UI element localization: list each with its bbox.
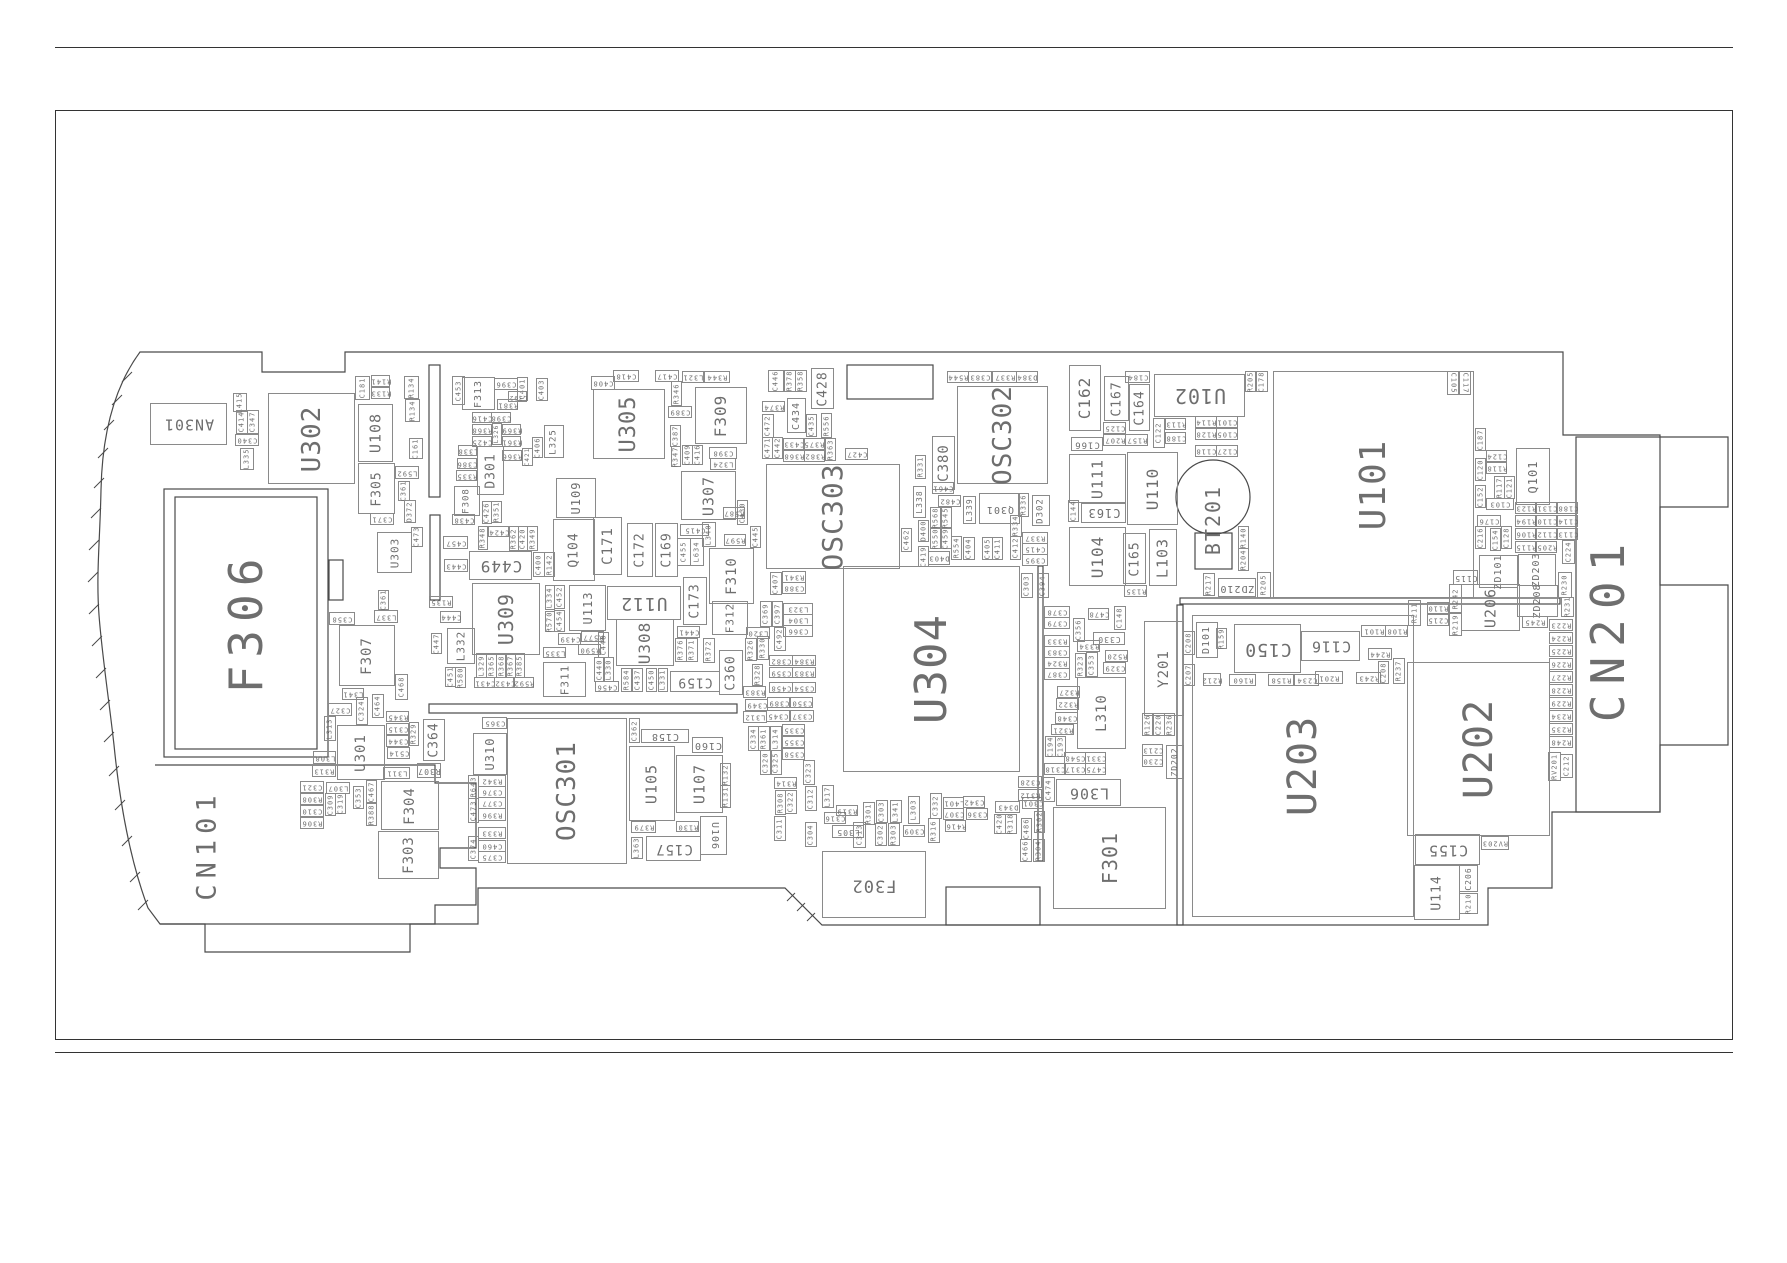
component-d372: D372 (404, 500, 416, 523)
component-designator: C313 (856, 825, 863, 846)
component-designator: F309 (713, 394, 729, 437)
component-designator: R375 (804, 441, 825, 448)
component-designator: R378 (787, 371, 794, 392)
component-designator: R323 (1077, 655, 1084, 676)
component-designator: C163 (1087, 507, 1120, 519)
component-designator: C371 (372, 516, 393, 523)
component-designator: U101 (1356, 439, 1392, 530)
component-r592: R592 (513, 677, 534, 688)
component-designator: R133 (370, 390, 391, 397)
component-c389: C389 (668, 406, 692, 418)
component-designator: C447 (433, 633, 440, 654)
component-designator: C154 (1492, 529, 1499, 550)
component-c122: C122 (1153, 418, 1165, 448)
component-designator: C172 (634, 532, 647, 567)
component-rv203: RV203 (1481, 836, 1509, 850)
component-designator: R318 (1008, 814, 1015, 835)
component-designator: C353 (1089, 654, 1096, 675)
component-designator: C336 (967, 811, 988, 818)
component-designator: C321 (302, 784, 323, 791)
component-designator: R363 (827, 439, 834, 460)
component-designator: L335 (544, 649, 565, 656)
component-c325: C325 (770, 750, 782, 775)
component-designator: C389 (670, 409, 691, 416)
component-r327: R327 (1057, 686, 1080, 698)
component-designator: U310 (484, 738, 496, 771)
component-c482: C482 (938, 495, 961, 507)
component-designator: L325 (550, 429, 559, 455)
component-c303: C303 (1021, 573, 1033, 598)
component-designator: R345 (387, 713, 408, 720)
component-c514: C514 (387, 747, 410, 759)
component-u104: U104 (1069, 527, 1126, 586)
component-designator: C340 (237, 437, 258, 444)
component-designator: C452 (556, 587, 563, 608)
component-designator: C444 (440, 614, 461, 621)
component-designator: R313 (314, 768, 335, 775)
component-r227: R227 (1549, 671, 1573, 683)
component-designator: BT201 (1203, 485, 1223, 555)
component-r316: R316 (928, 818, 940, 843)
component-designator: Q301 (985, 504, 1013, 514)
component-c309: C309 (903, 825, 925, 837)
component-designator: L324 (713, 461, 734, 468)
component-designator: R128 (1196, 431, 1217, 438)
component-osc302: OSC302 (957, 386, 1048, 484)
component-designator: C304 (808, 824, 815, 845)
component-designator: R361 (761, 728, 768, 749)
component-designator: R328 (754, 665, 761, 686)
component-designator: C364 (428, 722, 441, 757)
component-c178: C178 (1256, 371, 1268, 392)
component-designator: R416 (945, 823, 966, 830)
component-c428: C428 (811, 368, 834, 409)
component-c418: C418 (613, 370, 639, 382)
component-designator: L306 (1068, 785, 1108, 800)
component-designator: D400 (920, 521, 927, 542)
component-layer: AN301L415C414C347C340L335U302C181R141R13… (0, 0, 1787, 1263)
component-l338: L338 (458, 445, 477, 456)
component-c212: C212 (1560, 754, 1573, 778)
component-designator: R327 (1058, 689, 1079, 696)
component-designator: C354 (794, 684, 815, 691)
component-designator: F302 (852, 876, 897, 893)
component-designator: R383 (744, 689, 765, 696)
component-c387: C387 (670, 425, 681, 447)
component-l308: L308 (313, 751, 336, 764)
component-d403: D403 (928, 551, 950, 565)
component-designator: ZD210 (1219, 583, 1254, 593)
component-c382: C382 (769, 655, 793, 666)
component-designator: L340 (706, 524, 713, 545)
component-r307: R307 (417, 763, 441, 778)
component-designator: R643 (470, 777, 477, 798)
component-r210: R210 (1459, 893, 1478, 914)
component-designator: C160 (693, 740, 721, 750)
component-designator: R118 (1486, 465, 1507, 472)
component-designator: R194 (1515, 518, 1536, 525)
component-designator: R351 (493, 502, 500, 523)
component-designator: R369 (501, 426, 522, 433)
component-c315: C315 (386, 723, 409, 735)
component-r368: R368 (472, 424, 492, 435)
component-r349: R349 (527, 526, 538, 551)
component-designator: R379 (633, 824, 654, 831)
component-r336: R336 (1018, 493, 1029, 517)
component-designator: C383 (970, 374, 991, 381)
component-c336: C336 (966, 808, 988, 820)
component-d302: D302 (1032, 495, 1050, 526)
component-designator: ZD208 (1533, 583, 1543, 618)
component-designator: R142 (546, 554, 553, 575)
component-c442: C442 (772, 437, 783, 459)
component-designator: R242 (1452, 588, 1459, 609)
component-u302: U302 (268, 393, 355, 484)
component-designator: C101 (1217, 419, 1238, 426)
component-r383: R383 (792, 667, 816, 678)
component-r375: R375 (803, 438, 825, 450)
component-designator: R368 (784, 453, 805, 460)
component-f303: F303 (378, 831, 439, 879)
component-r371: R371 (686, 638, 698, 662)
component-designator: L338 (457, 447, 478, 454)
component-designator: U202 (1459, 699, 1499, 799)
component-designator: C121 (1506, 477, 1513, 498)
component-designator: C215 (1428, 617, 1449, 624)
component-designator: C327 (330, 706, 351, 713)
component-r130: R130 (676, 821, 699, 832)
component-r545: R545 (940, 507, 952, 528)
component-c360: C360 (719, 650, 743, 695)
component-r113: R113 (1165, 418, 1186, 430)
component-c193: C193 (1055, 736, 1066, 757)
component-r226: R226 (1549, 658, 1573, 670)
component-u113: U113 (569, 585, 606, 631)
component-c165: C165 (1123, 533, 1146, 584)
component-r366: R366 (502, 450, 522, 461)
component-designator: R225 (1551, 648, 1572, 655)
component-l337: L337 (374, 610, 398, 623)
component-c173: C173 (683, 577, 707, 625)
component-designator: C453 (455, 380, 462, 401)
component-designator: C426 (484, 502, 491, 523)
component-u202: U202 (1407, 662, 1550, 836)
component-r223: R223 (1549, 619, 1573, 631)
component-designator: R135 (431, 599, 452, 606)
component-u107: U107 (676, 755, 723, 813)
component-designator: R110 (1428, 605, 1449, 612)
component-designator: C424 (488, 528, 509, 535)
component-designator: C428 (816, 371, 829, 406)
component-designator: C165 (1128, 541, 1141, 576)
component-c329: C329 (1103, 662, 1126, 674)
component-designator: C455 (681, 542, 688, 563)
component-designator: C435 (808, 415, 815, 436)
component-r231: R231 (1561, 597, 1574, 617)
component-r416: R416 (945, 820, 966, 832)
component-designator: R223 (1551, 622, 1572, 629)
component-d301: D301 (477, 446, 504, 495)
component-r229: R229 (1549, 697, 1573, 709)
component-c435: C435 (806, 414, 817, 437)
component-l313: L313 (324, 716, 336, 741)
component-designator: R123 (1515, 505, 1536, 512)
component-designator: C188 (1557, 505, 1578, 512)
component-designator: C158 (651, 731, 679, 741)
component-designator: C348 (1056, 715, 1077, 722)
component-r204: R204 (1238, 548, 1249, 571)
component-designator: C406 (534, 437, 541, 458)
component-c468: C468 (395, 674, 408, 700)
component-c407: C407 (770, 572, 782, 595)
component-designator: RV201 (1551, 753, 1558, 779)
component-designator: C379 (1047, 620, 1068, 627)
component-designator: C433 (784, 441, 805, 448)
component-c394: C394 (1037, 573, 1049, 598)
component-r302: R302 (1034, 811, 1045, 833)
component-l306: L306 (1056, 779, 1121, 806)
component-c163: C163 (1081, 503, 1126, 523)
component-designator: R314 (775, 780, 796, 787)
component-designator: ZD203 (1532, 552, 1542, 587)
component-f308: F308 (454, 486, 480, 516)
component-u101: U101 (1273, 371, 1474, 598)
component-c335: C335 (782, 724, 805, 736)
component-r236: R236 (1164, 713, 1175, 736)
component-designator: R231 (1564, 597, 1571, 618)
component-designator: R331 (917, 457, 924, 478)
component-designator: R329 (411, 724, 418, 745)
component-r141: R141 (371, 375, 390, 387)
component-designator: F305 (370, 471, 383, 506)
component-designator: C162 (1077, 377, 1093, 420)
component-designator: C376 (482, 789, 503, 796)
component-f313: F313 (462, 377, 495, 410)
component-designator: C358 (332, 615, 353, 622)
component-designator: C325 (773, 752, 780, 773)
component-c447: C447 (431, 633, 442, 654)
component-designator: C345 (768, 713, 789, 720)
component-designator: C459 (943, 528, 950, 549)
component-c396: C396 (494, 378, 518, 390)
component-an301: AN301 (150, 403, 227, 445)
component-designator: U304 (910, 614, 954, 724)
component-c452: C452 (554, 585, 565, 609)
component-designator: C353 (355, 787, 362, 808)
component-c172: C172 (627, 523, 653, 577)
component-designator: C369 (763, 604, 770, 625)
component-c369: C369 (760, 601, 772, 627)
component-designator: F313 (474, 379, 484, 407)
component-designator: R228 (1551, 687, 1572, 694)
component-designator: C425 (472, 438, 493, 445)
component-designator: C359 (771, 669, 792, 676)
component-designator: C439 (559, 636, 580, 643)
component-c105: C105 (1216, 428, 1238, 440)
component-c188: C188 (1165, 432, 1186, 444)
component-designator: C128 (1503, 527, 1510, 548)
component-c224: C224 (1562, 540, 1575, 564)
component-c303: C303 (876, 800, 888, 823)
component-designator: L304 (788, 617, 809, 624)
component-f304: F304 (381, 781, 439, 830)
component-designator: R347 (673, 446, 680, 467)
component-c359: C359 (769, 667, 793, 678)
component-designator: C377 (482, 800, 503, 807)
component-designator: R307 (417, 767, 440, 775)
component-r396: R396 (478, 808, 506, 821)
component-c125: C125 (1103, 422, 1126, 434)
component-r330: R330 (757, 636, 769, 660)
component-c450: C450 (646, 668, 657, 692)
component-r230: R230 (1558, 572, 1572, 598)
component-c101: C101 (1216, 416, 1238, 428)
component-designator: C347 (250, 412, 257, 433)
component-designator: F301 (1100, 832, 1120, 884)
component-designator: U305 (618, 396, 640, 453)
component-c318: C318 (1044, 763, 1066, 775)
component-designator: C442 (774, 438, 781, 459)
component-designator: C302 (878, 824, 885, 845)
component-designator: C478 (1088, 611, 1109, 618)
component-designator: C405 (984, 538, 991, 559)
component-osc303: OSC303 (766, 464, 900, 569)
component-designator: C166 (1074, 440, 1100, 449)
component-c455: C455 (677, 538, 691, 566)
component-designator: R368 (498, 655, 505, 676)
component-c230: C230 (1142, 755, 1163, 767)
component-c342: C342 (963, 796, 985, 808)
component-designator: C438 (453, 516, 474, 523)
component-designator: C474 (1046, 779, 1053, 800)
component-designator: L103 (1156, 537, 1171, 577)
component-u309: U309 (472, 583, 540, 655)
component-r379: R379 (631, 821, 656, 833)
component-c160: C160 (692, 737, 723, 753)
component-r228: R228 (1549, 684, 1573, 696)
component-designator: U109 (570, 482, 582, 515)
component-c416: C416 (472, 412, 492, 423)
component-designator: R388 (368, 804, 375, 825)
component-designator: R362 (511, 528, 518, 549)
component-c404: C404 (963, 537, 975, 560)
component-designator: C451 (447, 667, 454, 688)
component-designator: C118 (1196, 448, 1217, 455)
component-designator: C358 (783, 751, 804, 758)
component-designator: C181 (359, 378, 366, 399)
component-u109: U109 (556, 478, 596, 518)
component-c188: C188 (1557, 502, 1578, 514)
component-designator: C230 (1142, 758, 1163, 765)
component-designator: C375 (482, 854, 503, 861)
component-c215: C215 (1427, 614, 1449, 626)
component-c361: C361 (378, 590, 389, 610)
component-designator: C105 (1217, 431, 1238, 438)
component-r554: R554 (951, 536, 962, 560)
component-c397: C397 (772, 601, 783, 627)
component-r556: R556 (821, 413, 832, 438)
component-designator: R383 (794, 669, 815, 676)
component-c445: C445 (750, 526, 761, 548)
component-designator: F303 (402, 836, 416, 874)
component-designator: R368 (472, 426, 493, 433)
component-c462: C462 (901, 528, 912, 552)
component-designator: C178 (1259, 371, 1266, 392)
component-f312: F312 (712, 601, 748, 635)
component-r106: R106 (1515, 528, 1536, 540)
component-designator: R224 (1551, 635, 1572, 642)
component-f311: F311 (543, 662, 586, 697)
component-designator: C440 (596, 659, 603, 680)
component-c311: C311 (774, 816, 786, 841)
component-c155: C155 (1415, 834, 1480, 865)
component-c472: C472 (762, 414, 774, 438)
component-designator: C112 (1536, 531, 1557, 538)
component-designator: C382 (771, 657, 792, 664)
component-designator: C397 (774, 604, 781, 625)
component-r346: R346 (671, 381, 682, 406)
component-q101: Q101 (1516, 448, 1550, 505)
component-designator: C320 (763, 752, 770, 773)
component-c118: C118 (1195, 445, 1217, 457)
component-r388: R388 (366, 803, 377, 826)
component-designator: R106 (1515, 531, 1536, 538)
component-r381: R381 (497, 399, 518, 410)
component-designator: C303 (879, 801, 886, 822)
component-c443: C443 (444, 559, 468, 572)
component-designator: R227 (1551, 674, 1572, 681)
component-r363: R363 (825, 438, 836, 461)
component-designator: D384 (1017, 374, 1038, 381)
component-l363: L363 (631, 837, 643, 859)
component-designator: C127 (1217, 448, 1238, 455)
component-u111: U111 (1069, 454, 1126, 503)
component-designator: D403 (929, 555, 950, 562)
component-c371: C371 (370, 513, 394, 525)
component-designator: ZD202 (1171, 747, 1179, 776)
component-designator: C380 (937, 444, 951, 482)
component-f309: F309 (695, 387, 747, 444)
component-designator: U102 (1173, 386, 1225, 406)
component-designator: L332 (456, 631, 467, 662)
component-designator: C467 (368, 781, 375, 802)
component-c473: C473 (411, 527, 423, 547)
component-r132: R132 (720, 763, 731, 786)
component-designator: R335 (456, 472, 477, 479)
component-designator: R131 (722, 786, 729, 807)
component-r333: R333 (478, 827, 506, 839)
component-designator: R229 (1551, 700, 1572, 707)
component-designator: Q101 (1527, 460, 1539, 493)
component-c157: C157 (646, 836, 701, 861)
component-designator: C148 (1117, 608, 1124, 629)
component-designator: C408 (593, 380, 614, 387)
component-r133: R133 (371, 387, 390, 399)
component-c431: C431 (474, 677, 495, 688)
component-r334: R334 (1077, 640, 1100, 652)
component-c356: C356 (1073, 618, 1085, 642)
component-designator: C161 (413, 438, 420, 459)
component-r205: R205 (1245, 371, 1256, 392)
component-designator: R319 (837, 807, 858, 814)
component-c424: C424 (488, 526, 509, 537)
component-r318: R318 (1005, 814, 1017, 834)
component-designator: C468 (398, 677, 405, 698)
component-designator: R113 (1165, 421, 1186, 428)
component-designator: R374 (763, 403, 784, 410)
component-f307: F307 (339, 625, 395, 686)
component-designator: C311 (777, 818, 784, 839)
